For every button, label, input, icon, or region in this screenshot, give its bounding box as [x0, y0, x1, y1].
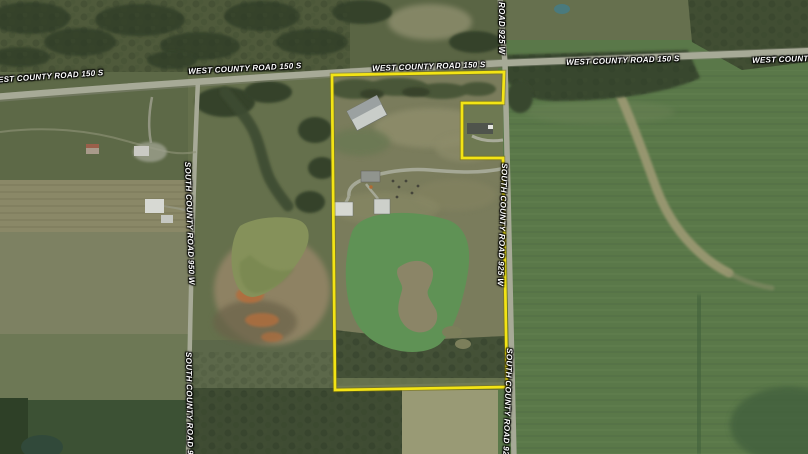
satellite-map-canvas[interactable]: WEST COUNTY ROAD 150 S WEST COUNTY ROAD …: [0, 0, 808, 454]
barn-west: [145, 199, 164, 213]
notch-homestead: [462, 103, 503, 158]
outbuilding-gray: [361, 171, 380, 182]
field-drainage: [698, 295, 700, 454]
house-white: [134, 146, 149, 156]
shed-east: [374, 199, 390, 214]
road-label-925w-short: ROAD 925 W: [497, 2, 506, 54]
pond-small-north: [554, 4, 570, 14]
